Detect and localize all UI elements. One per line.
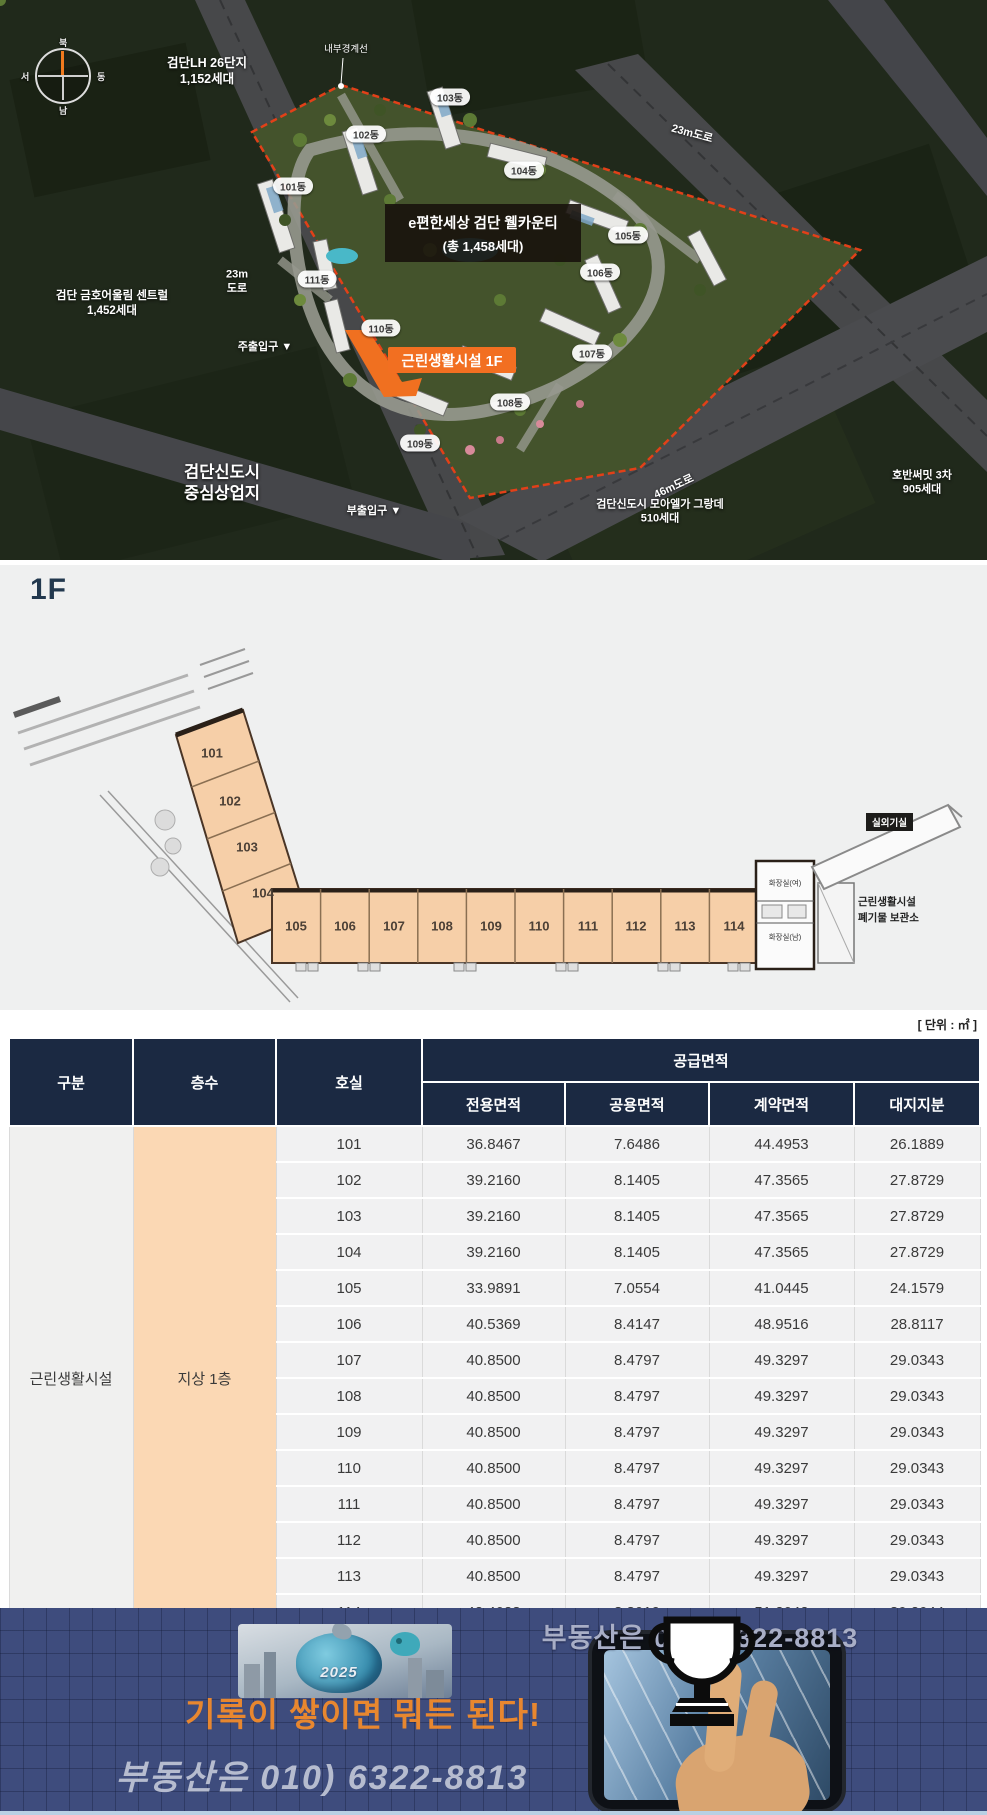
label-boundary: 내부경계선 — [324, 44, 368, 56]
cell-exclusive: 40.8500 — [422, 1450, 565, 1486]
cell-contract: 41.0445 — [709, 1270, 854, 1306]
cell-contract: 49.3297 — [709, 1450, 854, 1486]
cell-common: 7.0554 — [565, 1270, 709, 1306]
bag-year-text: 2025 — [296, 1664, 382, 1681]
cell-room: 104 — [276, 1234, 422, 1270]
unit-label: 108 — [431, 919, 453, 934]
header-room: 호실 — [276, 1038, 422, 1126]
unit-label: 112 — [626, 919, 647, 934]
cell-contract: 47.3565 — [709, 1234, 854, 1270]
category-cell: 근린생활시설 — [9, 1126, 133, 1630]
building-pill: 105동 — [608, 227, 648, 244]
cell-land: 29.0343 — [854, 1522, 980, 1558]
cell-common: 8.4797 — [565, 1522, 709, 1558]
label-sub-entrance: 부출입구 ▼ — [347, 504, 401, 518]
facility-callout-badge: 근린생활시설 1F — [388, 347, 516, 373]
cell-common: 8.4797 — [565, 1486, 709, 1522]
building-pill: 101동 — [273, 178, 313, 195]
header-category: 구분 — [9, 1038, 133, 1126]
cell-land: 26.1889 — [854, 1126, 980, 1162]
building-pill: 104동 — [504, 162, 544, 179]
cell-land: 29.0343 — [854, 1342, 980, 1378]
compass-west: 서 — [21, 70, 29, 83]
cell-common: 8.4797 — [565, 1414, 709, 1450]
cell-land: 27.8729 — [854, 1198, 980, 1234]
footer-banner: 2025 부동산은 010) 6322-8813 기록이 쌓이면 뭐든 된다! … — [0, 1608, 987, 1815]
cell-exclusive: 40.8500 — [422, 1342, 565, 1378]
cell-common: 8.4797 — [565, 1558, 709, 1594]
compass-south: 남 — [59, 104, 67, 117]
money-bag-icon — [296, 1633, 382, 1693]
cell-room: 113 — [276, 1558, 422, 1594]
cell-room: 109 — [276, 1414, 422, 1450]
table-row: 근린생활시설지상 1층10136.84677.648644.495326.188… — [9, 1126, 980, 1162]
cell-land: 29.0343 — [854, 1558, 980, 1594]
unit-label: 110 — [529, 919, 550, 934]
cell-common: 8.1405 — [565, 1162, 709, 1198]
building-pill: 103동 — [430, 89, 470, 106]
unit-label: 111 — [578, 919, 598, 934]
cell-contract: 49.3297 — [709, 1378, 854, 1414]
unit-label: 107 — [383, 919, 405, 934]
building-pill: 111동 — [298, 271, 337, 288]
cell-common: 8.4797 — [565, 1342, 709, 1378]
aerial-site-plan: 북 남 서 동 검단LH 26단지1,152세대 내부경계선 23m도로 23m… — [0, 0, 987, 560]
aerial-illustration — [0, 0, 987, 560]
cell-contract: 48.9516 — [709, 1306, 854, 1342]
cell-room: 108 — [276, 1378, 422, 1414]
outdoor-unit-label: 실외기실 — [866, 813, 913, 831]
cell-contract: 44.4953 — [709, 1126, 854, 1162]
turtle-character-icon — [390, 1632, 420, 1656]
cell-room: 112 — [276, 1522, 422, 1558]
restroom-male-label: 화장실(남) — [769, 932, 802, 943]
cell-room: 110 — [276, 1450, 422, 1486]
label-main-entrance: 주출입구 ▼ — [238, 340, 292, 354]
label-moa: 검단신도시 모아엘가 그랑데510세대 — [596, 498, 724, 527]
cell-land: 28.8117 — [854, 1306, 980, 1342]
cell-room: 103 — [276, 1198, 422, 1234]
floor-cell: 지상 1층 — [133, 1126, 276, 1630]
floorplan-section: 1F — [0, 560, 987, 1010]
cell-contract: 49.3297 — [709, 1558, 854, 1594]
floorplan-illustration — [0, 565, 987, 1015]
area-table-section: [ 단위 : ㎡ ] 구분 층수 호실 공급면적 전용면적 공용면적 계약면적 … — [0, 1010, 987, 1608]
money-bag-image: 2025 — [238, 1624, 452, 1698]
cell-contract: 49.3297 — [709, 1414, 854, 1450]
header-common: 공용면적 — [565, 1082, 709, 1126]
cell-contract: 49.3297 — [709, 1342, 854, 1378]
area-table: 구분 층수 호실 공급면적 전용면적 공용면적 계약면적 대지지분 근린생활시설… — [8, 1037, 981, 1631]
label-kumho: 검단 금호어울림 센트럴1,452세대 — [56, 289, 168, 319]
unit-label: 103 — [236, 840, 258, 855]
header-land: 대지지분 — [854, 1082, 980, 1126]
unit-label: 114 — [724, 919, 745, 934]
compass-east: 동 — [97, 70, 105, 83]
cell-contract: 49.3297 — [709, 1522, 854, 1558]
restroom-female-label: 화장실(여) — [769, 878, 802, 889]
complex-title: e편한세상 검단 웰카운티 — [408, 212, 558, 233]
building-pill: 106동 — [580, 264, 620, 281]
compass-north: 북 — [59, 36, 67, 49]
unit-label: 113 — [675, 919, 696, 934]
cell-exclusive: 33.9891 — [422, 1270, 565, 1306]
cell-land: 24.1579 — [854, 1270, 980, 1306]
cell-room: 101 — [276, 1126, 422, 1162]
building-pill: 110동 — [361, 320, 400, 337]
cell-common: 8.4797 — [565, 1450, 709, 1486]
compass-icon: 북 남 서 동 — [25, 38, 101, 114]
unit-label: 109 — [480, 919, 502, 934]
cell-room: 107 — [276, 1342, 422, 1378]
cell-exclusive: 40.8500 — [422, 1522, 565, 1558]
header-contract: 계약면적 — [709, 1082, 854, 1126]
cell-land: 27.8729 — [854, 1162, 980, 1198]
building-pill: 108동 — [490, 394, 530, 411]
cell-land: 27.8729 — [854, 1234, 980, 1270]
unit-label: 104 — [252, 886, 274, 901]
cell-common: 8.1405 — [565, 1234, 709, 1270]
cell-land: 29.0343 — [854, 1414, 980, 1450]
cell-common: 8.1405 — [565, 1198, 709, 1234]
cell-contract: 47.3565 — [709, 1198, 854, 1234]
cell-room: 102 — [276, 1162, 422, 1198]
cell-exclusive: 40.8500 — [422, 1558, 565, 1594]
trophy-icon — [642, 1608, 762, 1738]
building-pill: 109동 — [400, 435, 440, 452]
cell-common: 8.4147 — [565, 1306, 709, 1342]
label-road-23m-left: 23m도로 — [226, 268, 248, 297]
unit-label: 102 — [219, 794, 241, 809]
cell-room: 111 — [276, 1486, 422, 1522]
waste-storage-label: 근린생활시설 폐기물 보관소 — [858, 895, 919, 927]
header-exclusive: 전용면적 — [422, 1082, 565, 1126]
cell-exclusive: 39.2160 — [422, 1234, 565, 1270]
complex-info-box: e편한세상 검단 웰카운티 (총 1,458세대) — [385, 204, 581, 262]
building-pill: 107동 — [572, 345, 612, 362]
cell-exclusive: 40.8500 — [422, 1486, 565, 1522]
cell-exclusive: 36.8467 — [422, 1126, 565, 1162]
unit-label: 106 — [334, 919, 356, 934]
complex-total-units: (총 1,458세대) — [443, 236, 524, 255]
unit-label: 101 — [201, 746, 223, 761]
unit-note: [ 단위 : ㎡ ] — [918, 1016, 977, 1033]
cell-room: 105 — [276, 1270, 422, 1306]
cell-land: 29.0343 — [854, 1450, 980, 1486]
footer-bottom-line — [0, 1811, 987, 1815]
label-hoban: 호반써밋 3차905세대 — [892, 469, 952, 498]
cell-exclusive: 40.5369 — [422, 1306, 565, 1342]
header-supply: 공급면적 — [422, 1038, 980, 1082]
building-pill: 102동 — [346, 126, 386, 143]
cell-land: 29.0343 — [854, 1378, 980, 1414]
cell-contract: 49.3297 — [709, 1486, 854, 1522]
label-newtown: 검단신도시중심상업지 — [184, 463, 260, 506]
phone-number-bottom: 부동산은 010) 6322-8813 — [52, 1750, 592, 1799]
cell-common: 7.6486 — [565, 1126, 709, 1162]
cell-contract: 47.3565 — [709, 1162, 854, 1198]
cell-exclusive: 40.8500 — [422, 1378, 565, 1414]
table-body: 근린생활시설지상 1층10136.84677.648644.495326.188… — [9, 1126, 980, 1630]
cell-common: 8.4797 — [565, 1378, 709, 1414]
cell-exclusive: 40.8500 — [422, 1414, 565, 1450]
header-floor: 층수 — [133, 1038, 276, 1126]
cell-exclusive: 39.2160 — [422, 1162, 565, 1198]
unit-label: 105 — [285, 919, 307, 934]
label-lh-complex: 검단LH 26단지1,152세대 — [167, 55, 247, 88]
slogan-text: 기록이 쌓이면 뭐든 된다! — [128, 1688, 598, 1736]
cell-exclusive: 39.2160 — [422, 1198, 565, 1234]
cell-room: 106 — [276, 1306, 422, 1342]
cell-land: 29.0343 — [854, 1486, 980, 1522]
